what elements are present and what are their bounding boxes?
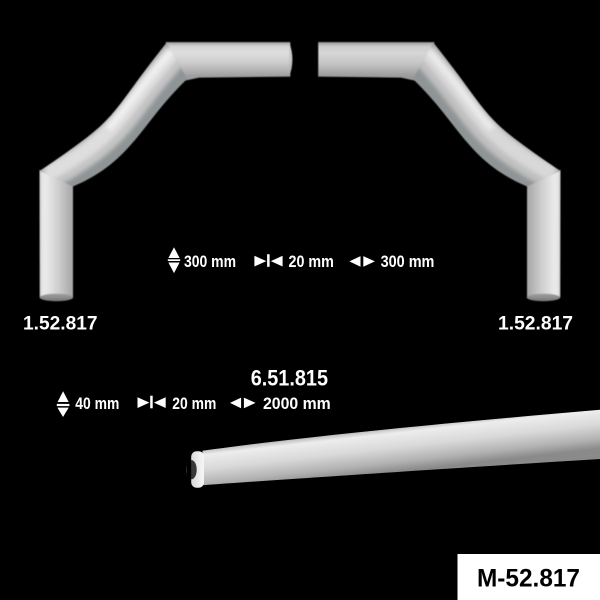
svg-text:20 mm: 20 mm bbox=[289, 252, 334, 271]
svg-text:300 mm: 300 mm bbox=[381, 252, 435, 271]
svg-text:1.52.817: 1.52.817 bbox=[23, 312, 98, 334]
svg-text:20 mm: 20 mm bbox=[172, 394, 216, 413]
svg-text:40 mm: 40 mm bbox=[75, 394, 119, 413]
svg-text:M-52.817: M-52.817 bbox=[477, 565, 580, 593]
svg-text:300 mm: 300 mm bbox=[184, 252, 236, 271]
svg-text:6.51.815: 6.51.815 bbox=[251, 365, 328, 390]
svg-text:1.52.817: 1.52.817 bbox=[498, 313, 573, 335]
svg-text:2000 mm: 2000 mm bbox=[263, 394, 331, 413]
